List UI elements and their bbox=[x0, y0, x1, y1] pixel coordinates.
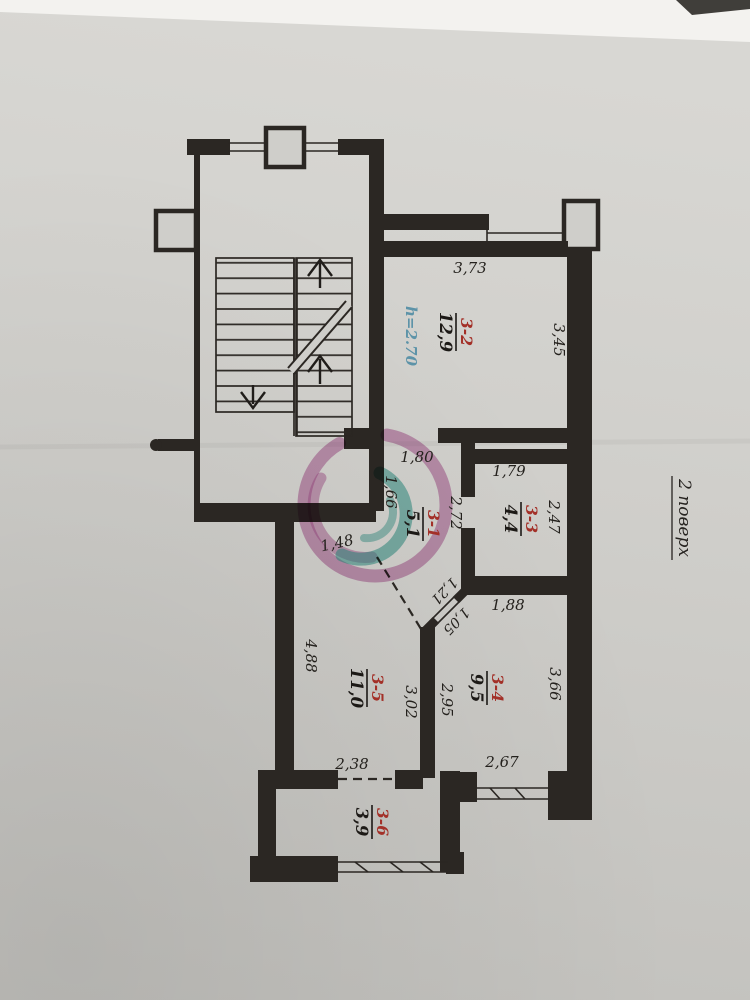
svg-text:4,4: 4,4 bbox=[501, 505, 520, 534]
floor-title: 2 поверх bbox=[672, 476, 694, 560]
svg-text:3-5: 3-5 bbox=[368, 674, 387, 702]
svg-text:3-6: 3-6 bbox=[373, 808, 392, 836]
svg-text:2 поверх: 2 поверх bbox=[674, 478, 694, 557]
left-hook-cap bbox=[150, 439, 162, 451]
dim-room2-top: 3,73 bbox=[453, 259, 486, 277]
svg-text:12,9: 12,9 bbox=[436, 312, 455, 353]
bottom-right-corner bbox=[548, 794, 592, 820]
room-3-3-label: 3-3 4,4 bbox=[501, 502, 541, 536]
dim-room5-bottom: 2,38 bbox=[334, 755, 368, 773]
room-3-1-label: 3-1 5,1 bbox=[403, 507, 443, 541]
svg-text:3-3: 3-3 bbox=[522, 505, 541, 533]
stairs bbox=[216, 258, 352, 436]
dim-room3-top: 1,79 bbox=[492, 462, 526, 480]
dim-room5-left: 4,88 bbox=[302, 638, 320, 672]
height-note: h=2.70 bbox=[402, 306, 420, 367]
left-hook-wall bbox=[158, 439, 196, 451]
svg-text:3-4: 3-4 bbox=[488, 674, 507, 702]
room-3-2-bottom-wall bbox=[438, 428, 568, 443]
floor-plan-photo: 3,73 1,80 1,79 1,88 2,38 2,67 3,45 1,66 … bbox=[0, 0, 750, 1000]
svg-text:11,0: 11,0 bbox=[347, 668, 366, 709]
top-right-pilaster bbox=[564, 201, 598, 249]
room-3-4-label: 3-4 9,5 bbox=[467, 671, 507, 705]
svg-text:9,5: 9,5 bbox=[467, 674, 486, 703]
dim-room2-right: 3,45 bbox=[550, 323, 568, 356]
svg-text:5,1: 5,1 bbox=[403, 510, 422, 539]
stair-flight-left bbox=[216, 258, 294, 412]
svg-text:3,9: 3,9 bbox=[352, 808, 371, 837]
dim-corridor-left: 1,66 bbox=[382, 475, 400, 509]
svg-text:3-1: 3-1 bbox=[424, 510, 443, 538]
right-outer-wall bbox=[567, 247, 592, 797]
floor-plan-scan: 3,73 1,80 1,79 1,88 2,38 2,67 3,45 1,66 … bbox=[0, 0, 750, 1000]
dim-room5-right: 3,02 bbox=[402, 685, 420, 718]
dim-corridor-right: 2,72 bbox=[447, 495, 465, 529]
svg-text:3-2: 3-2 bbox=[457, 318, 476, 346]
hall-bottom-wall bbox=[194, 503, 376, 522]
dim-room4-top: 1,88 bbox=[491, 596, 524, 614]
dim-room4-right: 3,66 bbox=[546, 667, 564, 701]
room-3-6-label: 3-6 3,9 bbox=[352, 805, 392, 839]
dim-opening-room2: 1,80 bbox=[400, 448, 434, 466]
dim-room4-bottom: 2,67 bbox=[484, 753, 519, 771]
stair-flight-right bbox=[296, 258, 352, 436]
stairwell-left-wall bbox=[194, 139, 200, 511]
dim-room4-left: 2,95 bbox=[438, 682, 456, 716]
stairwell-right-wall bbox=[369, 139, 384, 511]
shaft-box bbox=[266, 128, 304, 167]
dim-room3-right: 2,47 bbox=[545, 499, 563, 534]
left-pilaster bbox=[156, 211, 196, 250]
